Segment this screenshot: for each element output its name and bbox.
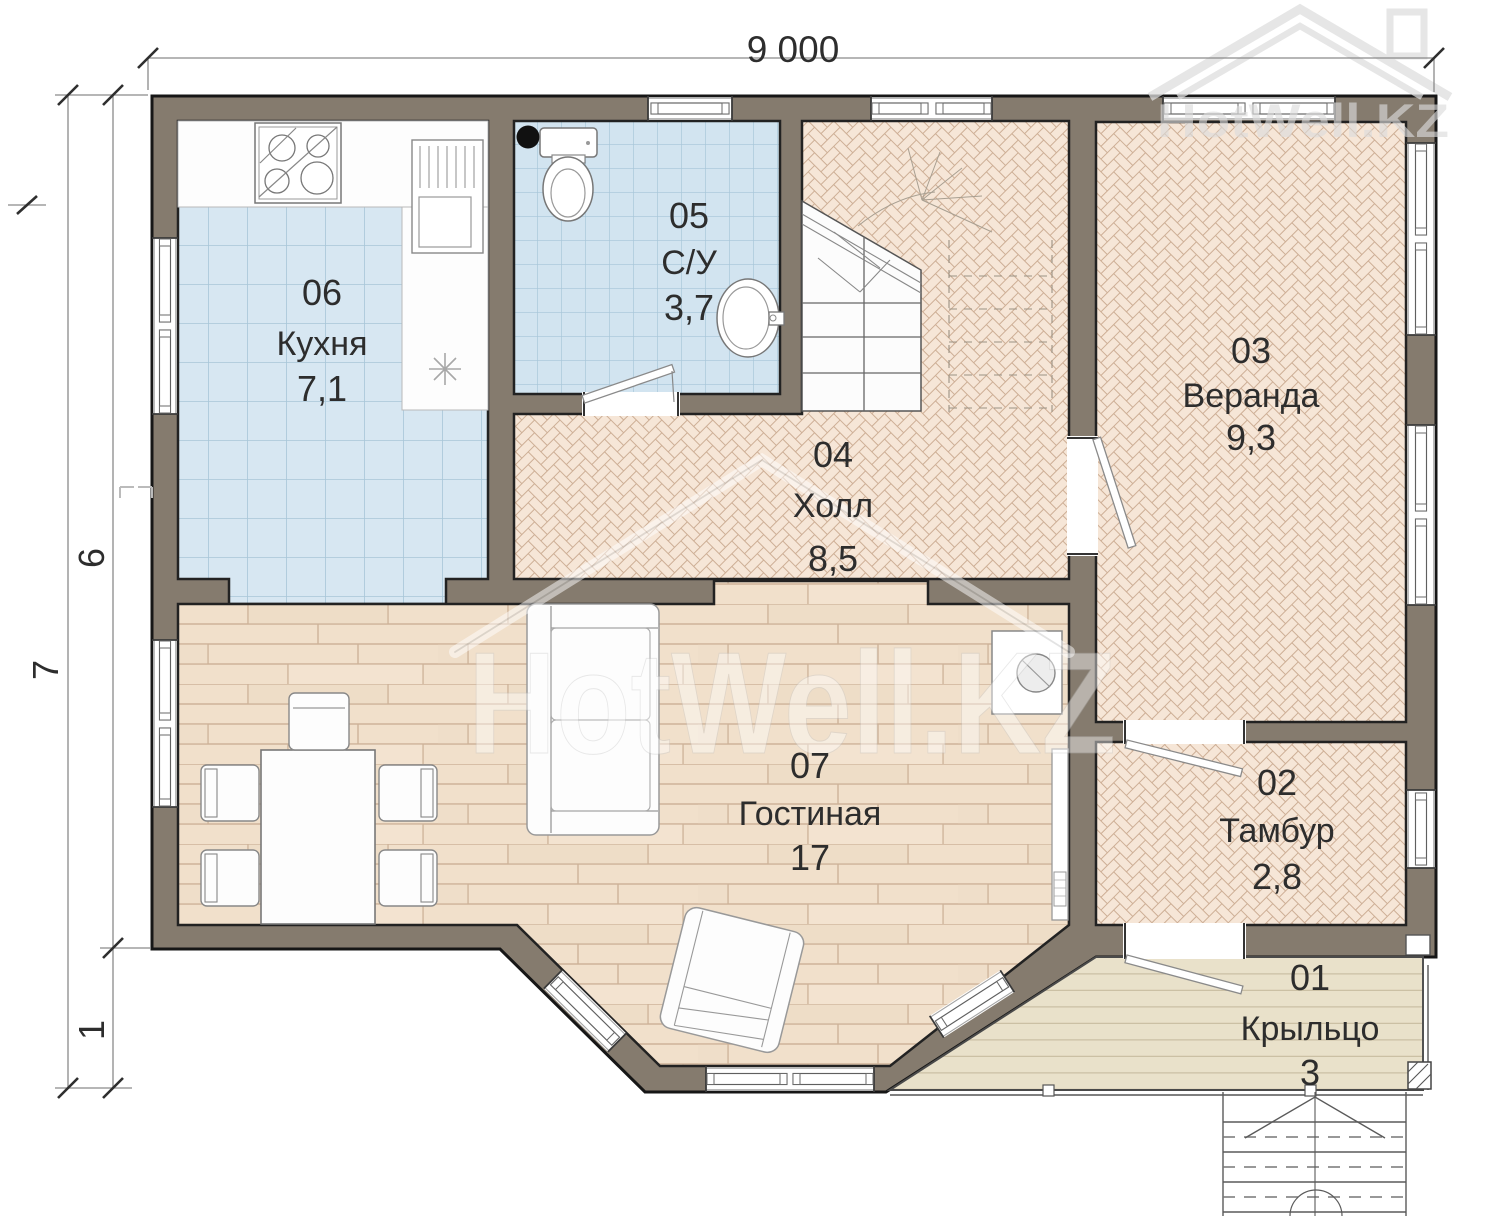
svg-text:6: 6 [71, 548, 112, 568]
svg-text:Тамбур: Тамбур [1219, 812, 1334, 850]
svg-text:1: 1 [71, 1020, 112, 1040]
svg-text:04: 04 [813, 434, 853, 475]
svg-text:05: 05 [669, 195, 709, 236]
svg-text:Крыльцо: Крыльцо [1241, 1010, 1380, 1048]
svg-text:3,7: 3,7 [664, 287, 714, 328]
svg-text:02: 02 [1257, 762, 1297, 803]
svg-text:HotWell.KZ: HotWell.KZ [1157, 94, 1449, 147]
svg-text:17: 17 [790, 837, 830, 878]
svg-text:01: 01 [1290, 957, 1330, 998]
svg-text:9,3: 9,3 [1226, 417, 1276, 458]
svg-text:8,5: 8,5 [808, 538, 858, 579]
svg-text:03: 03 [1231, 330, 1271, 371]
svg-text:Холл: Холл [793, 487, 873, 525]
svg-text:3: 3 [1300, 1052, 1320, 1093]
svg-text:9 000: 9 000 [747, 29, 840, 70]
svg-text:2,8: 2,8 [1252, 856, 1302, 897]
svg-text:Веранда: Веранда [1183, 377, 1320, 415]
svg-text:С/У: С/У [661, 244, 717, 282]
svg-text:06: 06 [302, 272, 342, 313]
svg-text:Кухня: Кухня [277, 325, 368, 363]
svg-text:7: 7 [25, 660, 66, 680]
svg-text:7,1: 7,1 [297, 368, 347, 409]
svg-text:07: 07 [790, 745, 830, 786]
svg-text:Гостиная: Гостиная [739, 795, 882, 833]
